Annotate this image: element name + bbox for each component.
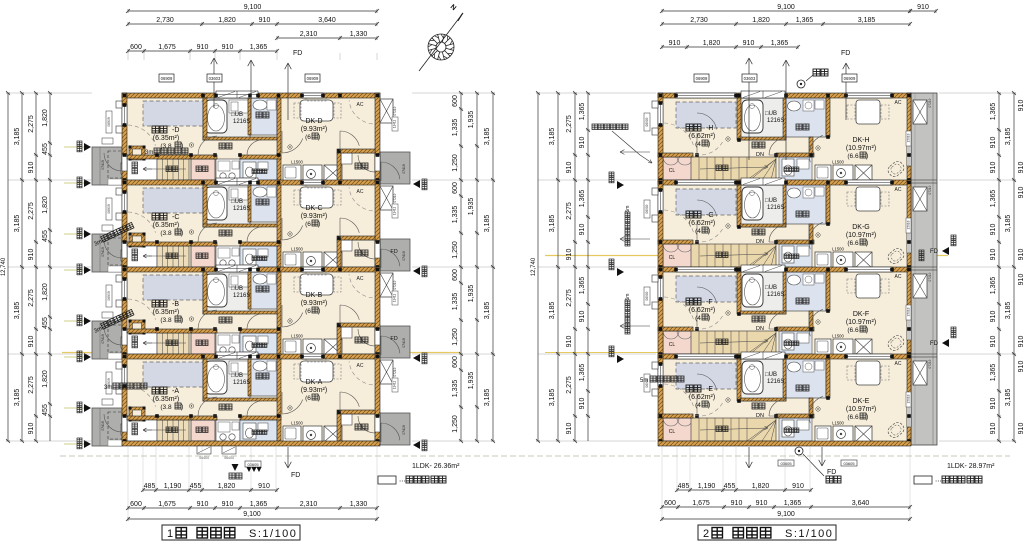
svg-text:L1500: L1500 [832,247,844,252]
svg-text:1,365: 1,365 [579,103,586,121]
svg-text:L1500: L1500 [832,334,844,339]
svg-text:910: 910 [917,4,929,11]
svg-text:910: 910 [990,137,997,149]
svg-text:FD: FD [390,336,397,342]
svg-text:(4: (4 [695,315,701,322]
svg-text:910: 910 [566,336,573,348]
svg-text:11411: 11411 [393,120,397,129]
svg-text:12,740: 12,740 [531,257,537,276]
svg-text:□UB: □UB [231,112,243,118]
svg-text:910: 910 [990,336,997,348]
svg-text:3,185: 3,185 [14,215,21,233]
svg-text:1,190: 1,190 [164,483,182,490]
svg-text:07219: 07219 [928,185,932,194]
svg-text:07419: 07419 [402,425,406,435]
svg-text:(10.97m²): (10.97m²) [846,145,876,152]
svg-text:DK-H: DK-H [852,137,869,144]
svg-text:910: 910 [990,249,997,261]
svg-text:-B: -B [172,301,179,308]
svg-text:S:1/100: S:1/100 [785,528,833,540]
svg-text:910: 910 [1018,187,1024,199]
svg-text:07419: 07419 [101,247,105,257]
svg-text:1,335: 1,335 [452,293,459,311]
svg-text:485: 485 [144,483,156,490]
svg-text:910: 910 [990,423,997,435]
svg-text:3,185: 3,185 [484,389,491,407]
svg-text:910: 910 [566,423,573,435]
svg-text:06909: 06909 [645,291,649,300]
svg-text:3,640: 3,640 [852,500,870,507]
svg-text:1: 1 [167,528,173,540]
svg-text:): ) [181,404,183,411]
svg-text:L1500: L1500 [291,334,303,339]
svg-text:910: 910 [756,500,768,507]
svg-text:1,820: 1,820 [218,483,236,490]
svg-text:3,185: 3,185 [1005,128,1012,146]
svg-text:S:1/100: S:1/100 [249,528,297,540]
svg-text:600: 600 [664,500,676,507]
svg-text:): ) [866,240,868,247]
svg-text:): ) [708,315,710,322]
svg-text:9,100: 9,100 [777,511,795,518]
svg-text:(4: (4 [695,141,701,148]
svg-text:(10.97m²): (10.97m²) [846,406,876,413]
svg-text:1,675: 1,675 [158,501,176,508]
svg-text:(3.8: (3.8 [160,317,172,324]
svg-text:3,185: 3,185 [858,17,876,24]
svg-text:FD: FD [841,50,850,57]
svg-text:2,275: 2,275 [566,289,573,307]
svg-text:03605: 03605 [843,461,855,466]
svg-text:06909: 06909 [645,204,649,213]
svg-text:07219: 07219 [393,106,397,115]
svg-text:910: 910 [579,311,586,323]
svg-text:07419: 07419 [101,421,105,431]
svg-text:(6: (6 [305,134,311,141]
svg-text:□UB: □UB [765,372,777,378]
svg-text:1LDK- 26.36m²: 1LDK- 26.36m² [412,463,460,470]
svg-text:07419: 07419 [402,338,406,348]
svg-text:07219: 07219 [928,359,932,368]
svg-text:15018: 15018 [907,307,911,316]
svg-text:3,185: 3,185 [484,128,491,146]
svg-text:3,185: 3,185 [549,389,556,407]
svg-text:600: 600 [452,356,459,368]
svg-text:07219: 07219 [393,367,397,376]
svg-text:□UB: □UB [231,286,243,292]
svg-text:03605: 03605 [780,461,792,466]
svg-text:600: 600 [452,95,459,107]
svg-text:(9.93m²): (9.93m²) [301,126,327,133]
svg-text:1216S: 1216S [233,293,250,299]
svg-text:2,275: 2,275 [566,202,573,220]
svg-text:AC: AC [895,100,902,106]
svg-text:(6.35m²): (6.35m²) [153,396,179,403]
svg-text:03603: 03603 [209,76,221,81]
svg-text:06909: 06909 [107,291,111,301]
svg-text:1,250: 1,250 [452,415,459,433]
svg-text:910: 910 [1018,361,1024,373]
svg-text:DK-B: DK-B [306,292,323,299]
svg-text:1,365: 1,365 [990,364,997,382]
svg-text:3,185: 3,185 [14,302,21,320]
svg-text:): ) [318,308,320,315]
svg-text:(6.6: (6.6 [847,240,859,247]
svg-text:□UB: □UB [765,285,777,291]
svg-text:DN: DN [756,239,764,245]
svg-text:910: 910 [1018,162,1024,174]
svg-text:5m: 5m [625,206,631,213]
svg-text:-F: -F [706,299,713,306]
svg-text:1,365: 1,365 [250,44,268,51]
svg-text:L1500: L1500 [832,421,844,426]
svg-text:1,935: 1,935 [468,198,475,216]
svg-text:1,365: 1,365 [784,500,802,507]
svg-text:15018: 15018 [907,220,911,229]
svg-text:DK-A: DK-A [306,379,323,386]
svg-text:2,310: 2,310 [300,31,318,38]
svg-text:3,185: 3,185 [1005,215,1012,233]
svg-text:06404: 06404 [224,456,234,460]
svg-text:): ) [318,134,320,141]
svg-text:910: 910 [990,224,997,236]
svg-text:L1500: L1500 [291,160,303,165]
svg-text:□UB: □UB [765,111,777,117]
svg-text:910: 910 [1018,336,1024,348]
svg-text:11411: 11411 [393,381,397,390]
svg-text:AC: AC [357,276,364,282]
svg-text:910: 910 [990,311,997,323]
svg-text:(6: (6 [305,395,311,402]
svg-text:AC: AC [895,274,902,280]
svg-text:11411: 11411 [393,294,397,303]
svg-text:CL: CL [669,429,676,435]
svg-text:(10.97m²): (10.97m²) [846,232,876,239]
svg-text:(10.97m²): (10.97m²) [846,319,876,326]
svg-text:(6: (6 [305,308,311,315]
svg-text:1,675: 1,675 [692,500,710,507]
svg-text:1,820: 1,820 [42,283,49,301]
svg-text:1216S: 1216S [767,292,784,298]
svg-text:(6.6: (6.6 [847,153,859,160]
svg-text:(6.62m²): (6.62m²) [689,220,715,227]
svg-text:AC: AC [357,102,364,108]
svg-text:3,640: 3,640 [318,17,336,24]
svg-text:910: 910 [28,249,35,261]
svg-text:910: 910 [258,483,270,490]
svg-text:2,275: 2,275 [28,376,35,394]
svg-text:(6.62m²): (6.62m²) [689,133,715,140]
svg-text:-E: -E [706,386,713,393]
svg-text:): ) [181,230,183,237]
svg-text:1,365: 1,365 [990,190,997,208]
svg-text:CL: CL [669,255,676,261]
svg-text:1,820: 1,820 [42,109,49,127]
svg-text:910: 910 [1018,249,1024,261]
svg-text:L1500: L1500 [832,160,844,165]
svg-text:): ) [708,402,710,409]
svg-text:FD: FD [930,341,939,347]
svg-text:600: 600 [130,44,142,51]
svg-text:15018: 15018 [907,133,911,142]
svg-text:1,330: 1,330 [350,31,368,38]
svg-text:DN: DN [756,326,764,332]
svg-text:1,365: 1,365 [796,17,814,24]
svg-text:07419: 07419 [402,164,406,174]
svg-text:(6.6: (6.6 [847,414,859,421]
svg-text:1,820: 1,820 [752,483,770,490]
svg-text:(6: (6 [305,221,311,228]
svg-text:1,250: 1,250 [452,241,459,259]
svg-text:1,365: 1,365 [771,40,789,47]
svg-text:FD: FD [291,472,300,479]
svg-text:910: 910 [579,398,586,410]
svg-text:06909: 06909 [161,76,173,81]
svg-text:(9.93m²): (9.93m²) [301,300,327,307]
svg-text:910: 910 [990,398,997,410]
svg-text:07419: 07419 [101,334,105,344]
svg-text:2,275: 2,275 [28,289,35,307]
svg-text:2,275: 2,275 [566,115,573,133]
svg-text:DK-E: DK-E [853,398,870,405]
svg-text:910: 910 [579,137,586,149]
svg-text:07219: 07219 [928,272,932,281]
svg-text:DK-C: DK-C [305,205,322,212]
svg-text:1,250: 1,250 [452,328,459,346]
svg-text:AC: AC [357,363,364,369]
svg-text:1216S: 1216S [233,119,250,125]
svg-text:07219: 07219 [393,193,397,202]
svg-text:910: 910 [743,40,755,47]
svg-text:1,365: 1,365 [579,190,586,208]
svg-text:9,100: 9,100 [244,4,262,11]
svg-text:910: 910 [792,483,804,490]
svg-text:06909: 06909 [107,117,111,127]
svg-text:AC: AC [895,361,902,367]
svg-text:3,185: 3,185 [549,128,556,146]
svg-text:3,185: 3,185 [14,128,21,146]
svg-text:910: 910 [669,40,681,47]
svg-text:□UB: □UB [231,199,243,205]
svg-text:1,820: 1,820 [42,370,49,388]
svg-text:AC: AC [357,189,364,195]
svg-text:(4: (4 [695,228,701,235]
svg-text:3,185: 3,185 [549,215,556,233]
svg-text:600: 600 [452,182,459,194]
svg-text:5m: 5m [625,294,631,301]
svg-text:-H: -H [706,125,713,132]
svg-text:3,185: 3,185 [14,389,21,407]
svg-text:DN: DN [756,413,764,419]
svg-text:1216S: 1216S [767,118,784,124]
svg-text:-D: -D [172,127,179,134]
svg-text:3m: 3m [104,385,112,391]
svg-text:2,310: 2,310 [300,501,318,508]
svg-text:1,335: 1,335 [452,119,459,137]
svg-text:□UB: □UB [765,198,777,204]
svg-text:CL: CL [669,342,676,348]
svg-text:910: 910 [222,44,234,51]
svg-text:9,100: 9,100 [777,4,795,11]
svg-text:-A: -A [172,388,179,395]
svg-text:03603: 03603 [744,76,756,81]
svg-text:455: 455 [190,483,202,490]
svg-text:455: 455 [724,483,736,490]
svg-text:(6.35m²): (6.35m²) [153,135,179,142]
svg-text:5m: 5m [640,378,648,384]
svg-text:): ) [181,317,183,324]
svg-text:485: 485 [678,483,690,490]
svg-text:1,820: 1,820 [752,17,770,24]
svg-text:(6.35m²): (6.35m²) [153,222,179,229]
svg-text:600: 600 [452,269,459,281]
svg-text:(6.62m²): (6.62m²) [689,394,715,401]
svg-text:CL: CL [669,168,676,174]
svg-text:07219: 07219 [928,98,932,107]
svg-text:): ) [708,141,710,148]
svg-text:1,365: 1,365 [579,277,586,295]
svg-text:FD: FD [390,249,397,255]
svg-text:-G: -G [706,212,714,219]
svg-text:DK-D: DK-D [305,118,322,125]
svg-text:(6.62m²): (6.62m²) [689,307,715,314]
svg-text:910: 910 [28,162,35,174]
svg-text:1,335: 1,335 [452,206,459,224]
svg-text:FD: FD [293,50,302,57]
svg-text:1,250: 1,250 [452,154,459,172]
svg-text:): ) [318,395,320,402]
svg-text:AC: AC [895,187,902,193]
svg-text:2: 2 [703,528,709,540]
svg-text:3,185: 3,185 [1005,302,1012,320]
svg-text:910: 910 [579,224,586,236]
svg-text:1216S: 1216S [767,379,784,385]
svg-text:DK-G: DK-G [852,224,870,231]
svg-text:2,730: 2,730 [156,17,174,24]
svg-text:12,740: 12,740 [1,257,7,276]
svg-text:L1500: L1500 [291,421,303,426]
svg-text:9,100: 9,100 [243,511,261,518]
svg-text:FD: FD [930,249,939,255]
svg-text:1,935: 1,935 [468,285,475,303]
svg-text:06909: 06909 [645,117,649,126]
svg-text:910: 910 [566,249,573,261]
svg-text:07419: 07419 [101,160,105,170]
svg-text:910: 910 [259,17,271,24]
svg-text:06404: 06404 [199,456,209,460]
svg-text:2,275: 2,275 [28,202,35,220]
svg-text:(6.6: (6.6 [847,327,859,334]
svg-text:910: 910 [1018,423,1024,435]
svg-text:07419: 07419 [402,251,406,261]
svg-text:(3.8: (3.8 [160,143,172,150]
svg-text:2,730: 2,730 [690,17,708,24]
svg-text:): ) [318,221,320,228]
svg-text:1,675: 1,675 [158,44,176,51]
svg-text:3,185: 3,185 [484,215,491,233]
svg-text:FD: FD [827,469,836,476]
svg-text:1,335: 1,335 [452,380,459,398]
svg-text:-C: -C [172,214,179,221]
svg-text:1,820: 1,820 [703,40,721,47]
svg-text:06909: 06909 [107,204,111,214]
svg-text:): ) [866,414,868,421]
svg-text:910: 910 [1018,274,1024,286]
svg-text:2,275: 2,275 [28,115,35,133]
svg-text:910: 910 [197,501,209,508]
svg-text:1LDK- 28.97m²: 1LDK- 28.97m² [947,463,995,470]
svg-text:): ) [866,153,868,160]
svg-text:2,275: 2,275 [566,376,573,394]
svg-text:□UB: □UB [231,373,243,379]
svg-text:910: 910 [197,44,209,51]
svg-text:06909: 06909 [844,76,856,81]
svg-text:⋯: ⋯ [399,478,406,485]
svg-text:15018: 15018 [907,394,911,403]
svg-text:3m: 3m [145,150,153,156]
svg-text:): ) [708,228,710,235]
svg-text:1,190: 1,190 [698,483,716,490]
svg-text:1216S: 1216S [233,380,250,386]
svg-text:(4: (4 [695,402,701,409]
svg-text:1,820: 1,820 [218,17,236,24]
svg-text:(3.8: (3.8 [160,404,172,411]
svg-text:1,935: 1,935 [468,111,475,129]
svg-text:07219: 07219 [393,280,397,289]
svg-text:910: 910 [990,162,997,174]
svg-text:⋯: ⋯ [935,478,942,485]
svg-text:1,330: 1,330 [350,501,368,508]
svg-text:(6.35m²): (6.35m²) [153,309,179,316]
svg-text:910: 910 [731,500,743,507]
svg-text:DN: DN [756,152,764,158]
svg-text:910: 910 [28,423,35,435]
svg-text:1,820: 1,820 [42,196,49,214]
svg-text:(9.93m²): (9.93m²) [301,213,327,220]
svg-text:1,365: 1,365 [250,501,268,508]
svg-text:1,365: 1,365 [990,103,997,121]
svg-text:3,185: 3,185 [549,302,556,320]
svg-text:): ) [866,327,868,334]
svg-text:06909: 06909 [307,76,319,81]
svg-text:(3.8: (3.8 [160,230,172,237]
svg-text:1,365: 1,365 [579,364,586,382]
svg-text:600: 600 [130,501,142,508]
svg-text:3,185: 3,185 [1005,389,1012,407]
svg-text:3,185: 3,185 [484,302,491,320]
svg-text:1216S: 1216S [767,205,784,211]
svg-text:910: 910 [566,162,573,174]
svg-text:910: 910 [222,501,234,508]
svg-text:910: 910 [28,336,35,348]
svg-text:DK-F: DK-F [853,311,869,318]
svg-text:1,365: 1,365 [990,277,997,295]
svg-text:L1500: L1500 [291,247,303,252]
svg-text:03605: 03605 [247,462,259,467]
svg-text:(9.93m²): (9.93m²) [301,387,327,394]
svg-text:910: 910 [1018,100,1024,112]
svg-text:1,935: 1,935 [468,372,475,390]
svg-text:11411: 11411 [393,207,397,216]
svg-text:1216S: 1216S [233,206,250,212]
svg-text:06909: 06909 [696,76,708,81]
